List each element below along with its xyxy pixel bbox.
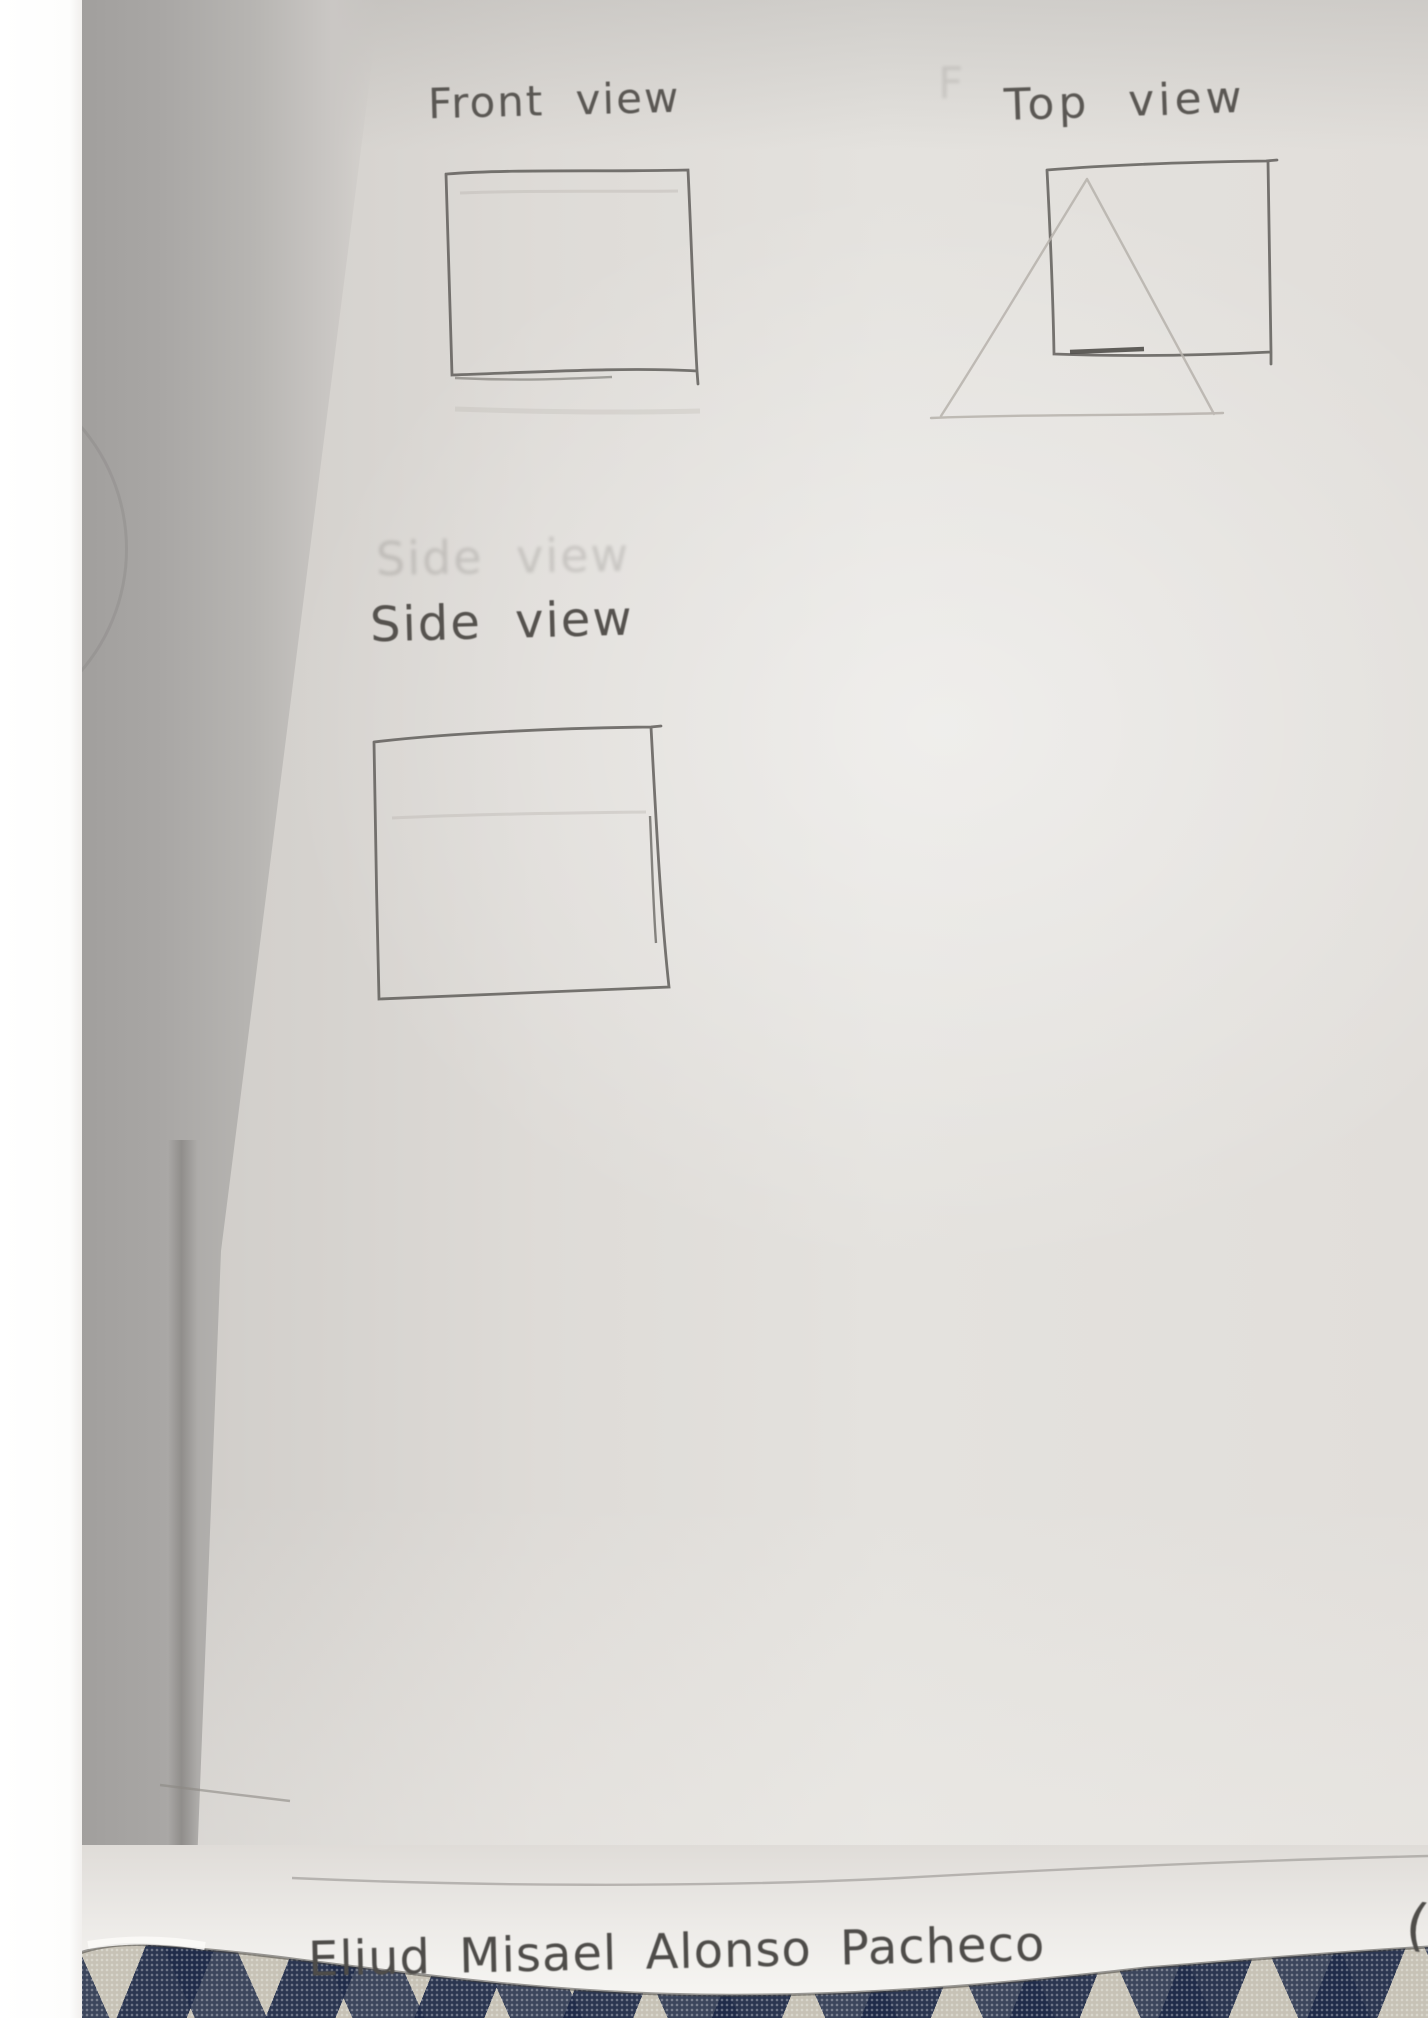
top-view-square-bottom-retrace bbox=[1070, 349, 1144, 352]
bottom-rule-line bbox=[292, 1856, 1428, 1885]
side-square-smudge bbox=[392, 812, 646, 818]
front-view-square bbox=[446, 170, 698, 384]
top-view-square bbox=[1047, 160, 1277, 364]
side-view-square-right-retrace bbox=[650, 816, 656, 943]
below-front-square-smudge bbox=[455, 409, 700, 412]
top-view-label: Top view bbox=[1003, 76, 1246, 128]
front-view-square-bottom-retrace bbox=[455, 377, 612, 380]
side-view-square bbox=[374, 726, 669, 999]
side-view-bleed-through: Side view bbox=[376, 532, 631, 582]
notebook-photo: Front view F Top view Side view Side vie… bbox=[0, 0, 1428, 2018]
student-name-signature: Eliud Misael Alonso Pacheco bbox=[308, 1920, 1046, 1983]
top-view-faint-triangle bbox=[931, 179, 1223, 418]
front-square-smudge bbox=[460, 191, 678, 193]
pencil-drawing-layer bbox=[0, 0, 1428, 2018]
front-view-label: Front view bbox=[427, 77, 680, 126]
side-view-label: Side view bbox=[369, 595, 634, 650]
adjacent-page-white-edge bbox=[0, 0, 82, 2018]
bottom-rule-line-left bbox=[160, 1785, 290, 1801]
front-view-bleed-through: F bbox=[938, 62, 965, 106]
